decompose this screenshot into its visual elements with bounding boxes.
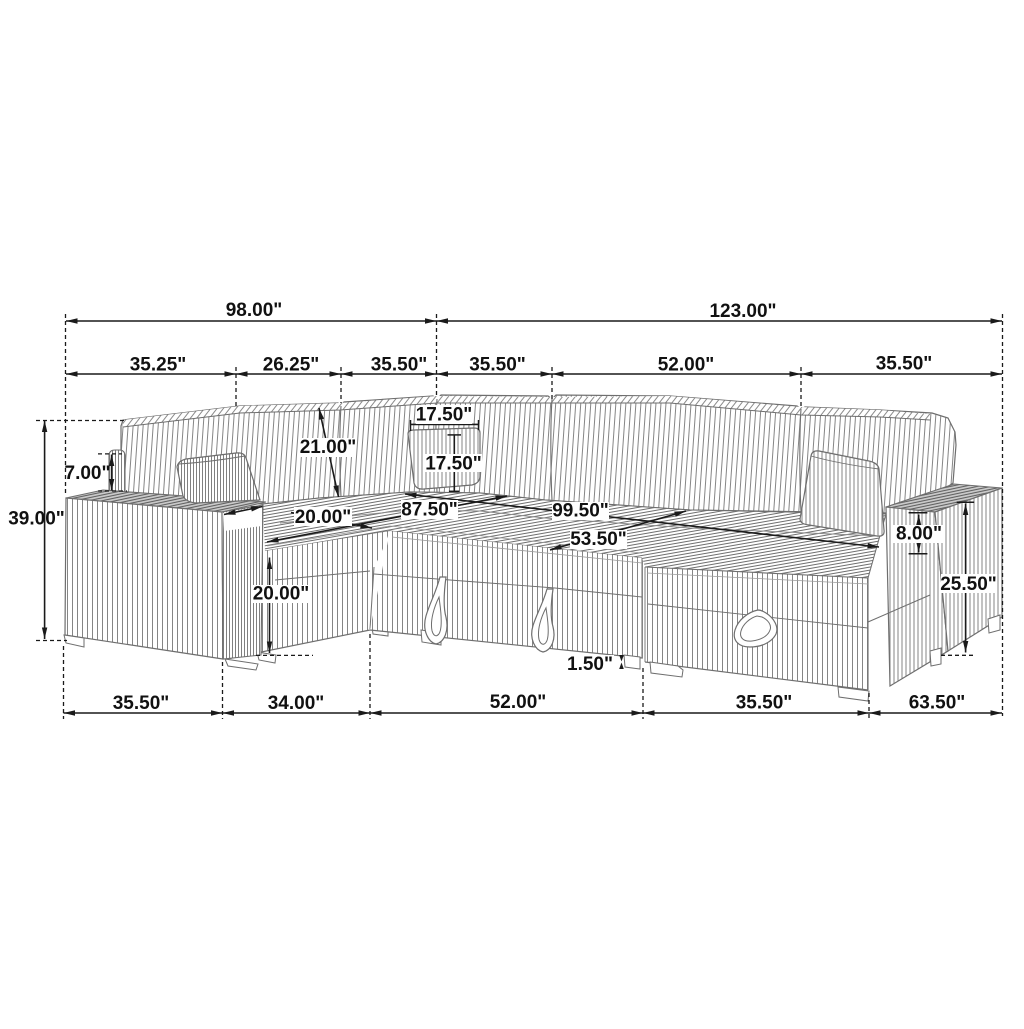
svg-text:17.50": 17.50" bbox=[416, 405, 473, 426]
svg-text:20.00": 20.00" bbox=[253, 584, 310, 605]
svg-text:7.00": 7.00" bbox=[65, 463, 111, 484]
svg-text:53.50": 53.50" bbox=[570, 529, 627, 550]
svg-text:35.50": 35.50" bbox=[371, 355, 428, 376]
svg-text:52.00": 52.00" bbox=[490, 692, 547, 713]
svg-text:8.00": 8.00" bbox=[896, 524, 942, 545]
svg-text:98.00": 98.00" bbox=[226, 300, 283, 321]
svg-text:20.00": 20.00" bbox=[295, 507, 352, 528]
svg-text:17.50": 17.50" bbox=[425, 454, 482, 475]
svg-text:1.50": 1.50" bbox=[567, 654, 613, 675]
svg-text:35.50": 35.50" bbox=[469, 355, 526, 376]
svg-text:34.00": 34.00" bbox=[268, 693, 325, 714]
svg-text:52.00": 52.00" bbox=[658, 355, 715, 376]
svg-text:87.50": 87.50" bbox=[401, 500, 458, 521]
svg-text:63.50": 63.50" bbox=[909, 693, 966, 714]
svg-text:35.50": 35.50" bbox=[736, 693, 793, 714]
svg-text:35.50": 35.50" bbox=[876, 354, 933, 375]
svg-text:39.00": 39.00" bbox=[8, 509, 65, 530]
svg-text:35.50": 35.50" bbox=[113, 693, 170, 714]
svg-text:21.00": 21.00" bbox=[300, 437, 357, 458]
svg-text:35.25": 35.25" bbox=[130, 355, 187, 376]
svg-text:25.50": 25.50" bbox=[940, 574, 997, 595]
svg-text:26.25": 26.25" bbox=[263, 355, 320, 376]
svg-text:99.50": 99.50" bbox=[552, 501, 609, 522]
svg-text:123.00": 123.00" bbox=[709, 301, 776, 322]
